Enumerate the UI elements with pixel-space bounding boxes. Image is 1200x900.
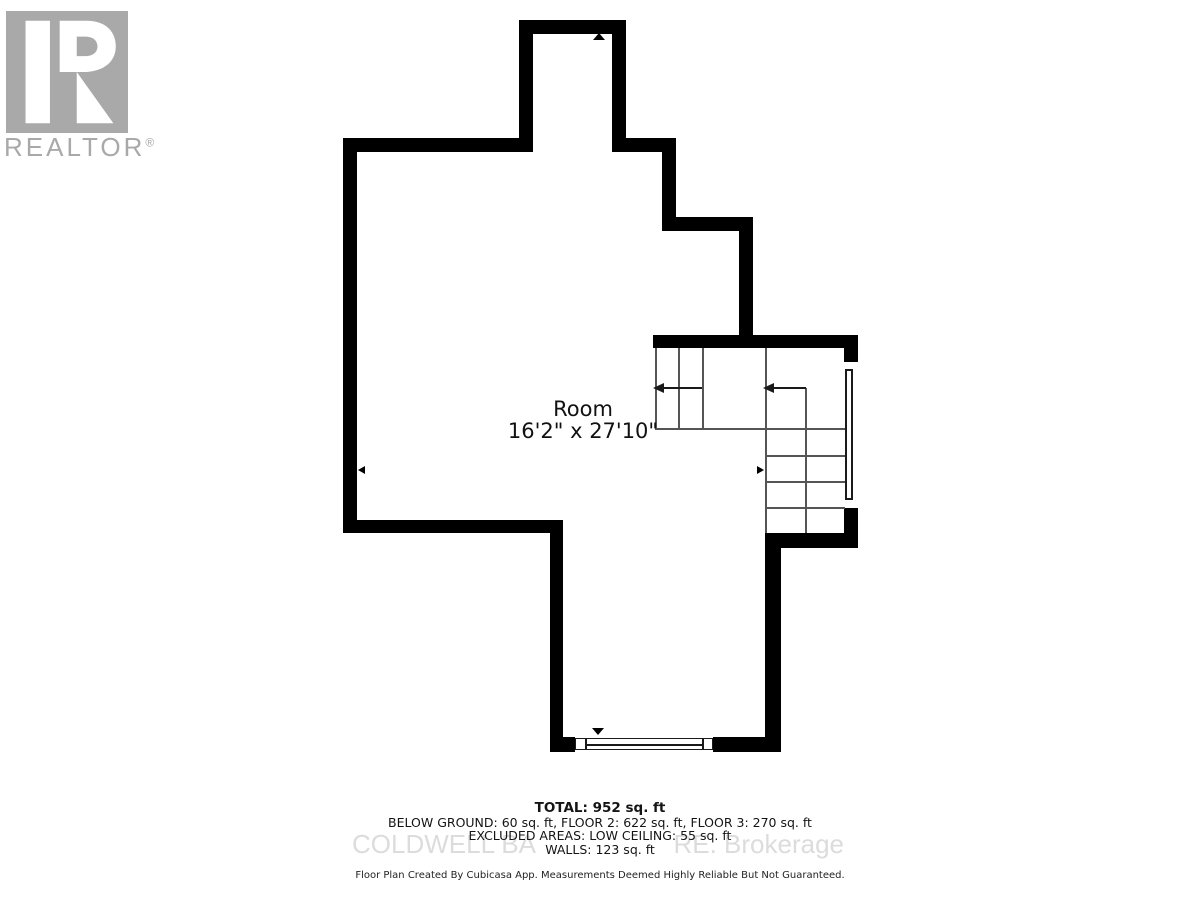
realtor-wordmark: REALTOR® [4,132,154,160]
dimension-arrow-down [592,728,604,735]
wall-entry-nook-top [519,20,626,34]
door-mid-rail [586,744,702,746]
floor-plan-page: REALTOR® Room 16'2" x 27'10" [0,0,1200,900]
stair-tread-line-1 [766,455,845,457]
wall-right-above-window [844,335,858,362]
wall-left-step-vertical [550,520,563,752]
room-dimensions: 16'2" x 27'10" [433,420,733,442]
dimension-arrow-right [757,466,764,474]
stair-direction-line-upper [662,387,702,389]
stair-tread-line-2 [766,481,845,483]
wall-bottom-left-horizontal [343,520,563,533]
stair-direction-arrow-upper [653,383,664,393]
area-summary: TOTAL: 952 sq. ft BELOW GROUND: 60 sq. f… [0,802,1200,857]
disclaimer-text: Floor Plan Created By Cubicasa App. Meas… [0,870,1200,881]
total-area-line: TOTAL: 952 sq. ft [0,802,1200,816]
room-name: Room [433,398,733,420]
wall-entry-nook-right [612,20,626,152]
realtor-r-icon [6,11,128,133]
room-label: Room 16'2" x 27'10" [433,398,733,442]
wall-bottom-right [713,737,781,752]
excluded-areas-line: EXCLUDED AREAS: LOW CEILING: 55 sq. ft [0,829,1200,843]
registered-trademark: ® [145,135,154,149]
stair-divider-line [805,388,807,533]
stair-tread-line-3 [766,507,845,509]
floor-areas-line: BELOW GROUND: 60 sq. ft, FLOOR 2: 622 sq… [0,816,1200,830]
wall-left [343,138,357,533]
wall-lower-right [765,533,781,752]
stair-direction-arrow-lower [763,383,774,393]
wall-entry-nook-left [519,20,533,152]
stair-edge-line-left [765,348,767,533]
wall-step-vertical-2 [739,217,753,348]
wall-top-left [343,138,533,152]
dimension-arrow-up [593,33,605,40]
realtor-logo [6,11,128,133]
door-cap-right [702,738,704,750]
window-icon [845,369,853,500]
stair-direction-line-lower [772,387,806,389]
dimension-arrow-left [358,466,365,474]
walls-area-line: WALLS: 123 sq. ft [0,843,1200,857]
wall-stair-top [653,335,858,348]
